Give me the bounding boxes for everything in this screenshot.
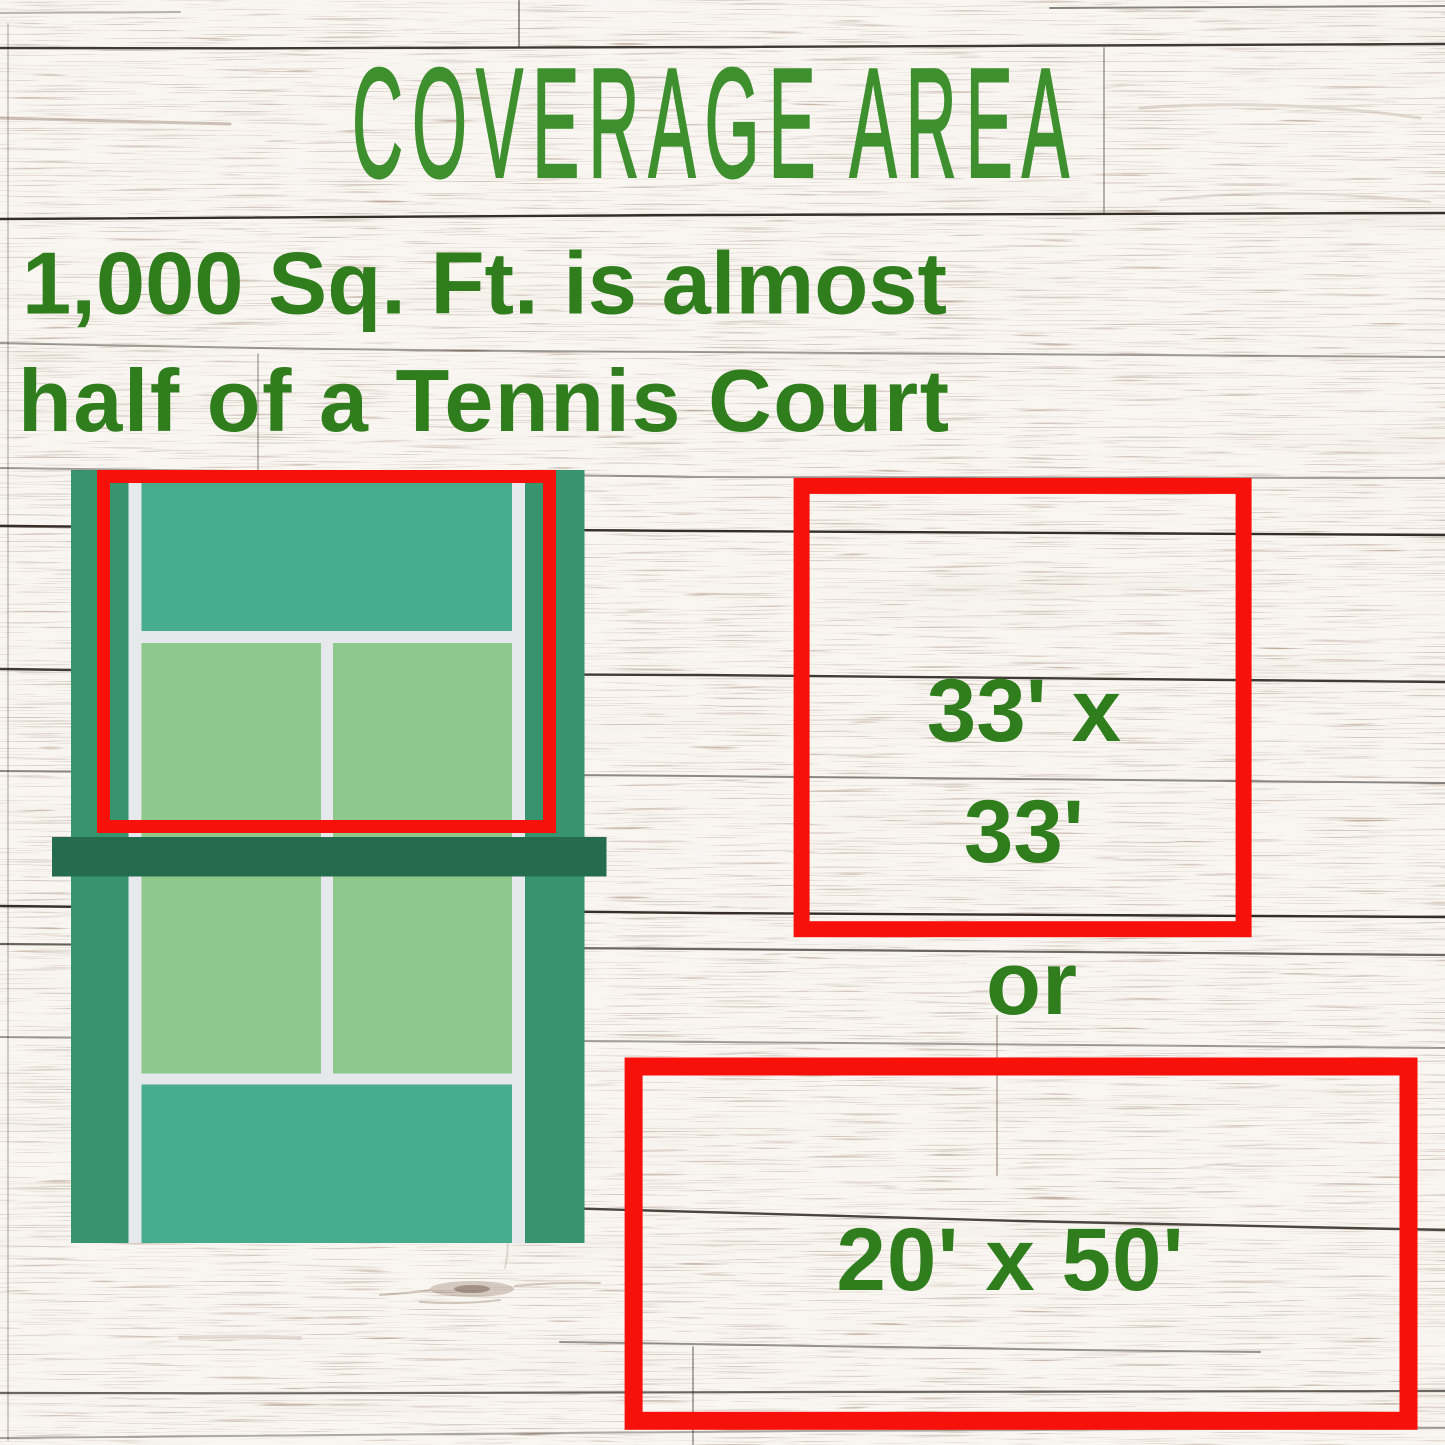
svg-text:33': 33' — [964, 781, 1084, 881]
svg-text:20' x 50': 20' x 50' — [836, 1209, 1184, 1309]
svg-text:33' x: 33' x — [927, 660, 1121, 760]
svg-text:half of a Tennis Court: half of a Tennis Court — [18, 351, 949, 450]
svg-text:COVERAGE AREA: COVERAGE AREA — [352, 37, 1078, 211]
svg-text:1,000 Sq. Ft. is almost: 1,000 Sq. Ft. is almost — [22, 234, 947, 333]
svg-text:or: or — [986, 934, 1078, 1034]
